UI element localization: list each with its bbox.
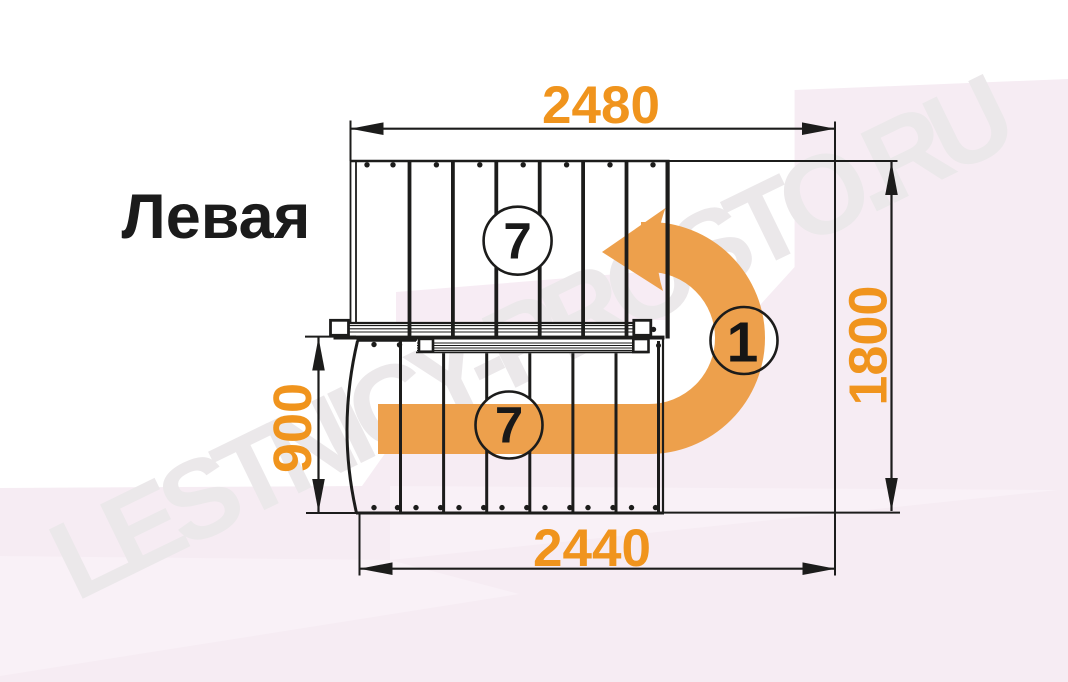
svg-text:1800: 1800 [839,286,899,406]
svg-text:2480: 2480 [542,76,660,135]
svg-text:7: 7 [503,213,531,270]
svg-text:900: 900 [263,383,323,473]
svg-text:Левая: Левая [122,182,311,252]
svg-text:7: 7 [495,397,523,454]
svg-text:2440: 2440 [533,519,651,578]
svg-text:1: 1 [727,311,759,375]
